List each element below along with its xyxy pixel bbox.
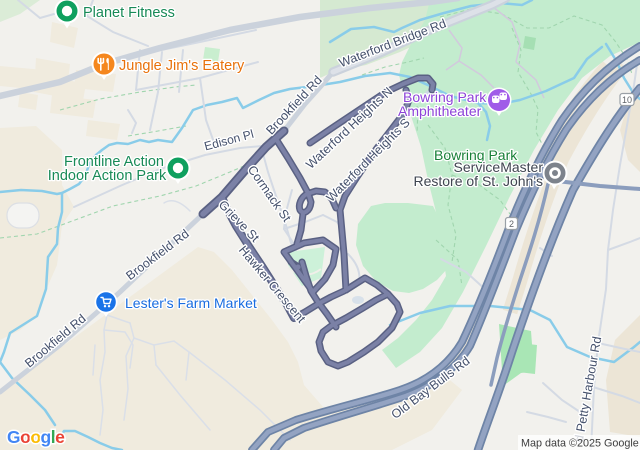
svg-text:2: 2 bbox=[509, 219, 514, 229]
svg-text:Amphitheater: Amphitheater bbox=[398, 103, 482, 119]
svg-text:Jungle Jim's Eatery: Jungle Jim's Eatery bbox=[119, 58, 245, 74]
svg-text:Lester's Farm Market: Lester's Farm Market bbox=[125, 295, 257, 311]
svg-text:Restore of St. John's: Restore of St. John's bbox=[413, 173, 543, 189]
svg-text:Google: Google bbox=[7, 427, 65, 447]
svg-text:Indoor Action Park: Indoor Action Park bbox=[48, 168, 167, 184]
svg-text:10: 10 bbox=[622, 95, 632, 105]
svg-text:Planet Fitness: Planet Fitness bbox=[83, 5, 175, 21]
svg-text:Map data ©2025 Google: Map data ©2025 Google bbox=[521, 438, 639, 450]
